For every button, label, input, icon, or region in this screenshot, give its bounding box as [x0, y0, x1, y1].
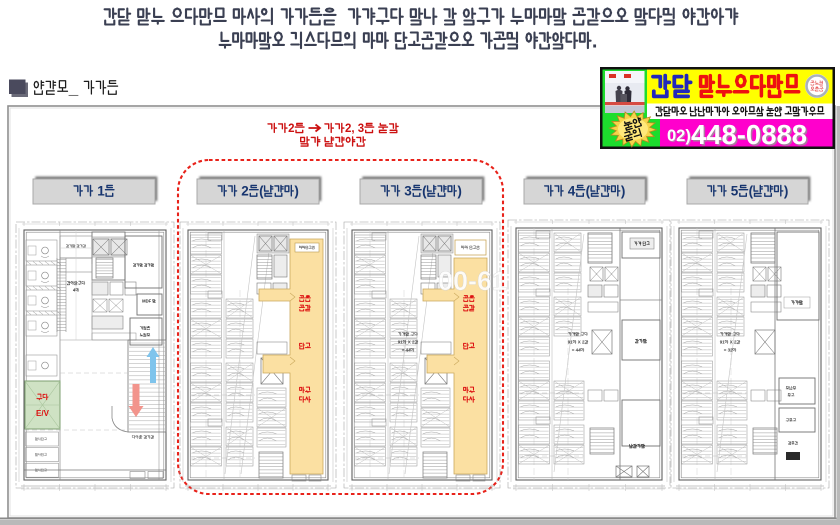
svg-text:X: X — [578, 340, 581, 345]
svg-text:02): 02) — [667, 127, 691, 145]
svg-text:91: 91 — [398, 340, 403, 345]
svg-text:44: 44 — [576, 348, 581, 353]
svg-text:00-61: 00-61 — [438, 266, 507, 296]
svg-text:91: 91 — [568, 340, 573, 345]
svg-text:=: = — [572, 348, 575, 353]
svg-text:X: X — [408, 340, 411, 345]
svg-text:91: 91 — [720, 340, 725, 345]
svg-text:_: _ — [68, 78, 79, 97]
svg-text:2: 2 — [288, 123, 294, 135]
svg-text:4: 4 — [568, 184, 576, 199]
svg-text:(: ( — [749, 184, 754, 199]
svg-text:=: = — [724, 348, 727, 353]
svg-text:.: . — [592, 30, 598, 52]
svg-text:(: ( — [422, 184, 427, 199]
svg-text:32: 32 — [728, 348, 733, 353]
svg-text:2: 2 — [241, 184, 249, 199]
svg-text:448-0888: 448-0888 — [691, 119, 807, 150]
svg-text:3: 3 — [404, 184, 412, 199]
svg-text:E/V: E/V — [36, 409, 50, 418]
svg-text:MDF: MDF — [142, 298, 152, 303]
svg-text:1: 1 — [97, 184, 105, 199]
svg-text:3: 3 — [358, 123, 364, 135]
svg-text:44: 44 — [406, 348, 411, 353]
svg-text:): ) — [457, 184, 462, 199]
svg-text:2,: 2, — [345, 123, 355, 135]
svg-text:): ) — [784, 184, 789, 199]
svg-text:=: = — [402, 348, 405, 353]
svg-text:X: X — [730, 340, 733, 345]
svg-text:): ) — [621, 184, 626, 199]
svg-text:(: ( — [259, 184, 264, 199]
svg-text:): ) — [294, 184, 299, 199]
svg-text:5: 5 — [731, 184, 739, 199]
svg-text:(: ( — [586, 184, 591, 199]
